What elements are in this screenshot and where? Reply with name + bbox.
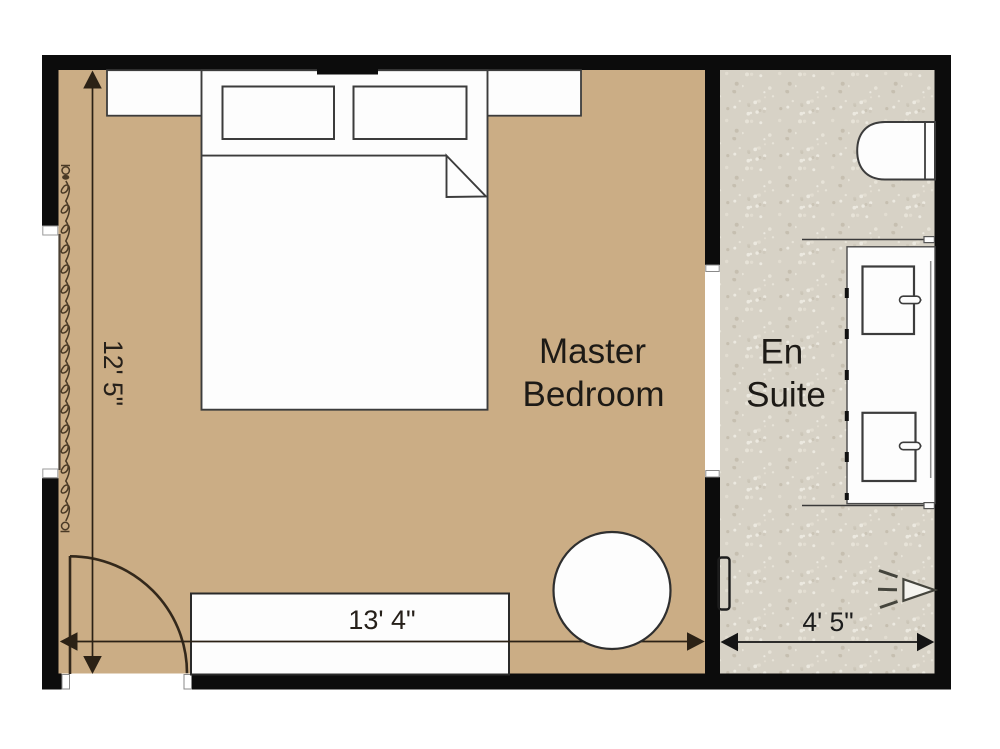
svg-text:4' 5": 4' 5" bbox=[802, 607, 853, 637]
svg-text:Bedroom: Bedroom bbox=[522, 375, 664, 414]
svg-text:En: En bbox=[760, 332, 803, 371]
svg-text:Suite: Suite bbox=[746, 375, 826, 414]
svg-text:13' 4": 13' 4" bbox=[348, 605, 415, 635]
svg-text:12' 5": 12' 5" bbox=[98, 340, 128, 406]
svg-text:Master: Master bbox=[539, 332, 646, 371]
